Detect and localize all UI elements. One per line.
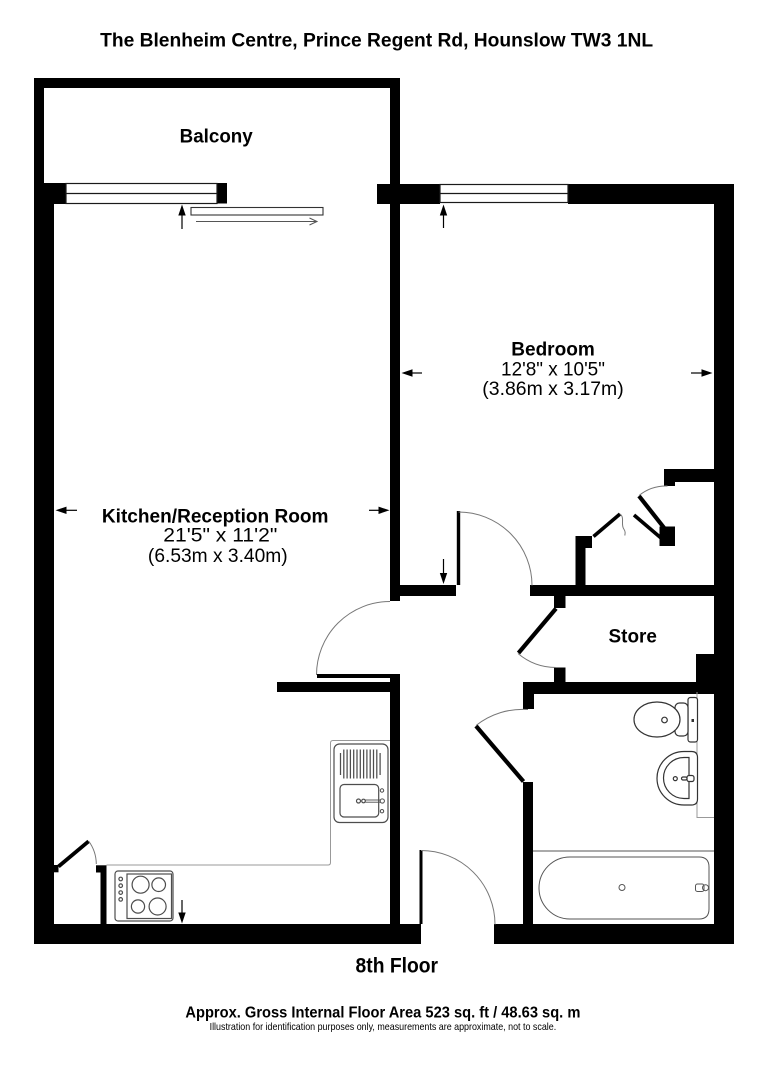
svg-text:8th Floor: 8th Floor (356, 955, 439, 978)
svg-text:(6.53m x 3.40m): (6.53m x 3.40m) (148, 546, 288, 567)
svg-text:12'8" x 10'5": 12'8" x 10'5" (501, 359, 605, 380)
svg-text:Bedroom: Bedroom (511, 340, 595, 361)
svg-text:Store: Store (609, 627, 657, 648)
svg-text:21'5" x 11'2": 21'5" x 11'2" (163, 526, 277, 547)
svg-text:Kitchen/Reception Room: Kitchen/Reception Room (102, 506, 329, 527)
svg-text:Approx. Gross Internal Floor A: Approx. Gross Internal Floor Area 523 sq… (185, 1005, 580, 1022)
svg-text:Illustration for identificatio: Illustration for identification purposes… (210, 1022, 557, 1033)
svg-text:(3.86m x 3.17m): (3.86m x 3.17m) (482, 379, 623, 400)
svg-text:The Blenheim Centre, Prince Re: The Blenheim Centre, Prince Regent Rd, H… (100, 29, 653, 51)
svg-text:Balcony: Balcony (180, 127, 254, 148)
